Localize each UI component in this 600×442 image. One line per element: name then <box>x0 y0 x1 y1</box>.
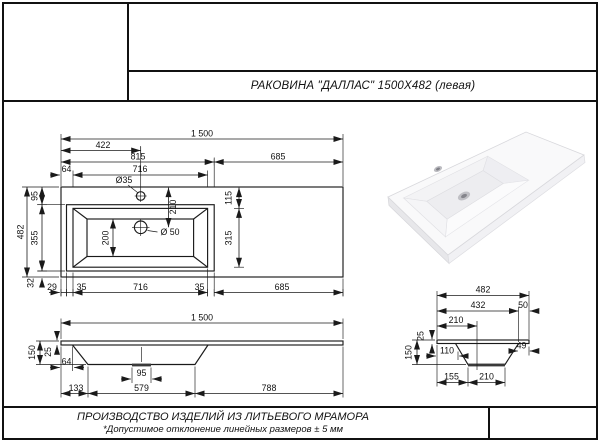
dim-front-b788: 788 <box>262 383 277 393</box>
dim-rim-bottom: 32 <box>26 278 36 288</box>
dim-faucet-to-drain: 210 <box>168 200 178 215</box>
technical-drawing: 1 500 422 815 685 64 716 Ø35 482 95 355 … <box>0 0 600 442</box>
front-dimension-lines <box>40 323 343 394</box>
side-section-view: 482 432 50 210 25 150 110 49 155 210 <box>404 285 539 387</box>
dim-side-50: 50 <box>518 300 528 310</box>
dim-right-zone: 685 <box>271 152 286 162</box>
dim-b685: 685 <box>275 282 290 292</box>
drawing-sheet: РАКОВИНА "ДАЛЛАС" 1500X482 (левая) ПРОИЗ… <box>0 0 600 442</box>
front-outline <box>61 341 343 366</box>
front-dimension-labels: 1 500 150 25 64 95 133 579 788 <box>27 313 276 394</box>
dim-edge-left: 64 <box>62 164 72 174</box>
dim-front-slab: 25 <box>43 347 53 357</box>
dim-side-432: 432 <box>471 300 486 310</box>
dim-rim-top: 95 <box>30 191 40 201</box>
dim-faucet-offset: 422 <box>96 140 111 150</box>
dim-b716: 716 <box>133 282 148 292</box>
sink-3d-render <box>388 132 585 264</box>
side-dimension-labels: 482 432 50 210 25 150 110 49 155 210 <box>404 285 528 382</box>
dim-b35a: 35 <box>77 282 87 292</box>
dim-front-height: 150 <box>27 345 37 360</box>
plan-view: 1 500 422 815 685 64 716 Ø35 482 95 355 … <box>16 129 344 297</box>
dim-basin-width: 716 <box>133 164 148 174</box>
dim-front-b133: 133 <box>69 383 84 393</box>
dim-floor-depth: 200 <box>101 231 111 246</box>
dim-faucet-dia: Ø35 <box>116 175 133 185</box>
dim-side-110: 110 <box>440 346 454 356</box>
dim-total-width: 1 500 <box>191 129 213 139</box>
dim-side-slab: 25 <box>416 331 426 341</box>
dim-right-rim: 115 <box>224 191 234 205</box>
dim-front-total: 1 500 <box>191 313 213 323</box>
dim-side-depth: 482 <box>476 285 491 295</box>
dim-front-boss: 95 <box>137 368 147 378</box>
dim-side-49: 49 <box>517 341 527 351</box>
dim-basin-zone: 815 <box>131 152 146 162</box>
dim-side-drain-offset: 210 <box>449 315 464 325</box>
dim-side-height: 150 <box>404 345 414 360</box>
dim-drain-dia: Ø 50 <box>160 227 179 237</box>
dim-b29: 29 <box>47 282 57 292</box>
dim-front-edge: 64 <box>62 357 72 367</box>
dim-basin-depth: 355 <box>30 231 40 246</box>
dim-b35b: 35 <box>195 282 205 292</box>
dim-right-depth: 315 <box>224 231 234 246</box>
dim-depth-total: 482 <box>16 225 26 240</box>
dim-side-210: 210 <box>479 372 494 382</box>
front-section-view: 1 500 150 25 64 95 133 579 788 <box>27 313 343 398</box>
dim-front-b579: 579 <box>134 383 149 393</box>
dim-side-155: 155 <box>444 372 459 382</box>
